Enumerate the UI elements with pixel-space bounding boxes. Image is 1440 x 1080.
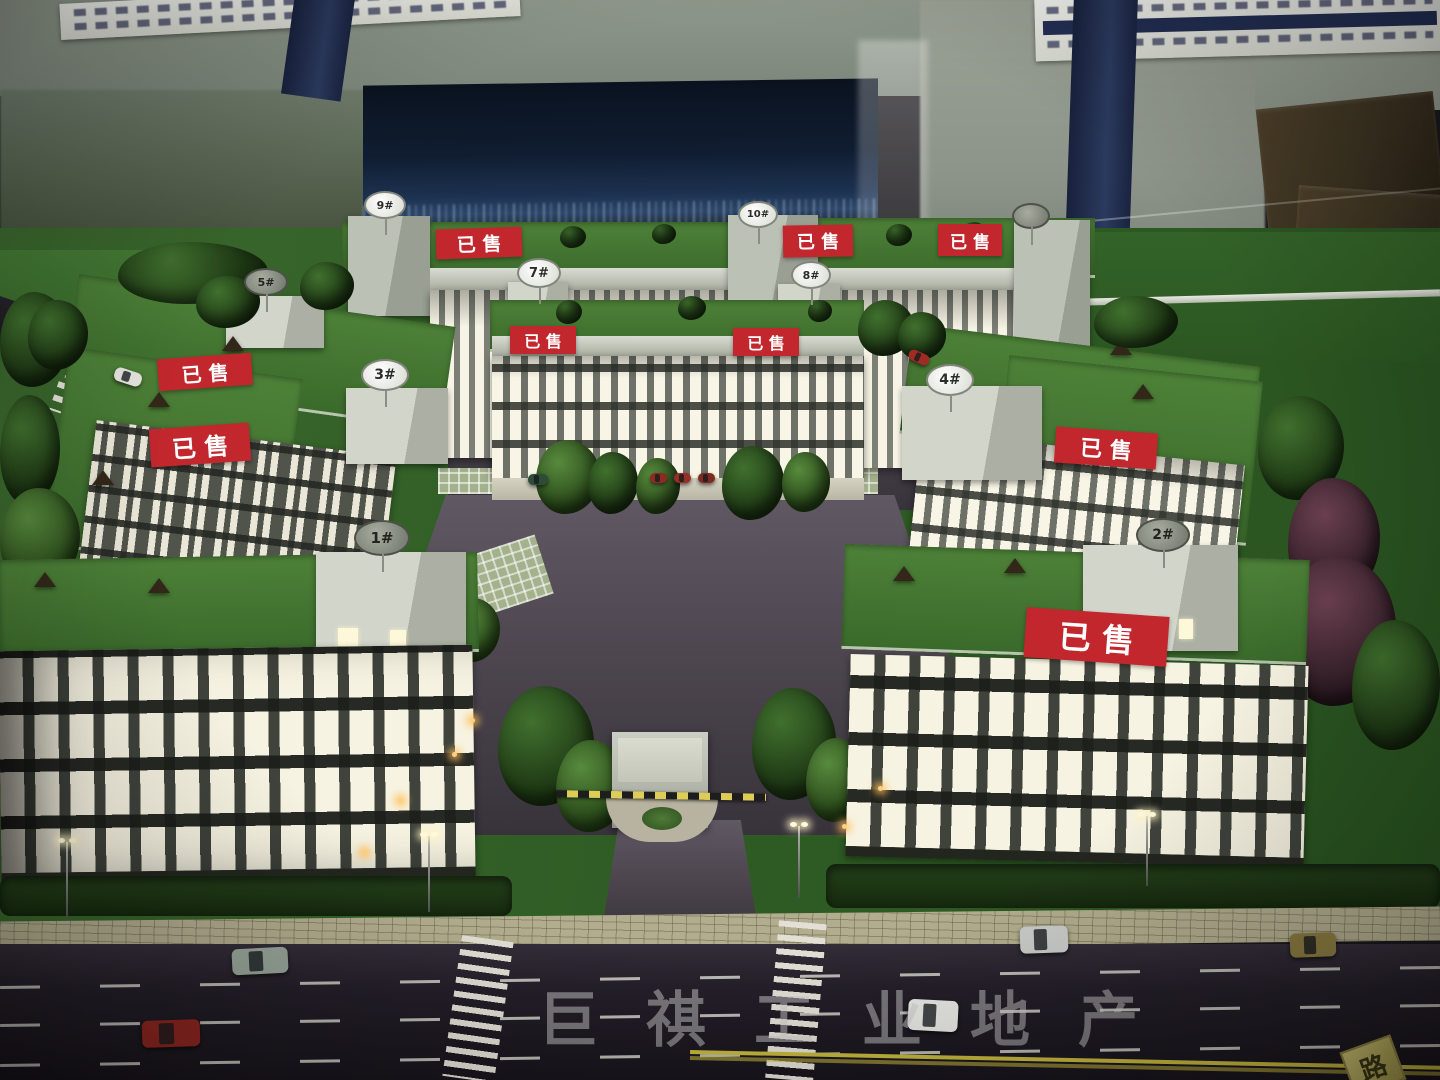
- photo-vignette: [0, 0, 1440, 1080]
- architectural-model-photo: 已售 9# 7# 已售 已售 10# 8# 已售 已售 已售 已售 5# 3# …: [0, 0, 1440, 1080]
